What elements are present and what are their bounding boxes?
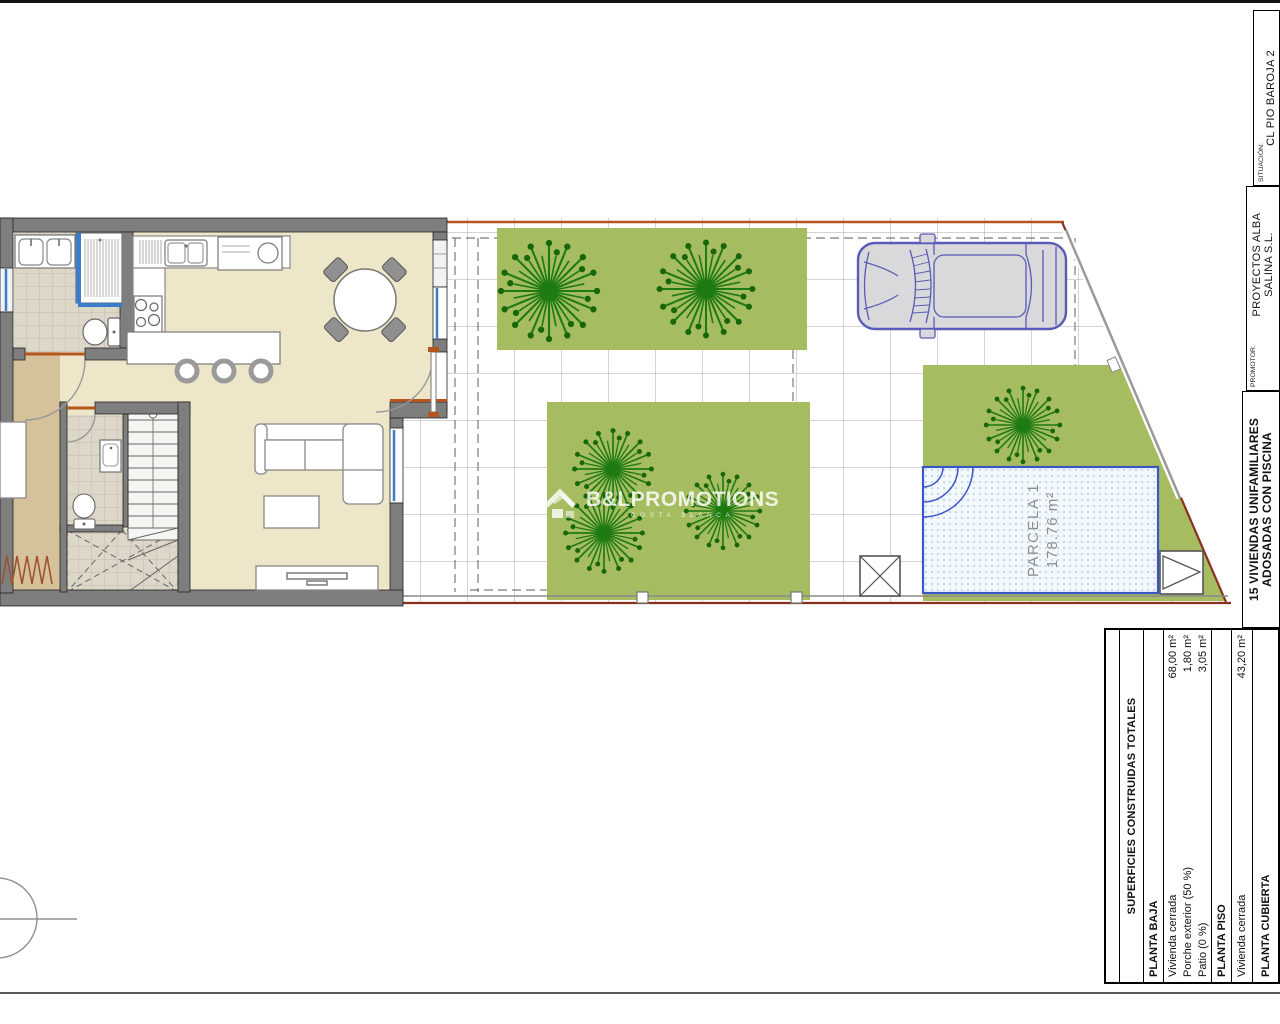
lawn-middle	[547, 402, 810, 600]
dining-set	[323, 257, 408, 343]
situacion-value: CL PIO BAROJA 2	[1265, 11, 1277, 185]
drain-box-icon	[860, 556, 900, 596]
car-mirror	[920, 329, 935, 338]
parcel-label: PARCELA 1	[1025, 483, 1042, 577]
wall-stairs-right	[178, 402, 190, 592]
areas-row-planta-baja: PLANTA BAJA	[1144, 630, 1164, 982]
areas-row-porche: Porche exterior (50 %) 1,80 m²	[1180, 630, 1195, 982]
situacion-label: SITUACIÓN:	[1257, 11, 1265, 185]
coffee-table	[264, 496, 319, 528]
sheet-border-top	[0, 0, 1280, 3]
areas-row-vivienda-baja: Vivienda cerrada 68,00 m²	[1165, 630, 1180, 982]
project-title-line2: ADOSADAS CON PISCINA	[1261, 392, 1275, 627]
areas-row-planta-piso: PLANTA PISO	[1212, 630, 1232, 982]
kitchen-sink	[165, 240, 207, 266]
pool: PARCELA 1 178.76 m²	[923, 467, 1158, 593]
areas-row-planta-cubierta: PLANTA CUBIERTA	[1253, 630, 1278, 982]
toilet-icon	[83, 318, 120, 346]
tv-unit	[256, 566, 378, 590]
north-symbol	[0, 878, 77, 958]
wall-left	[0, 218, 13, 270]
shower	[76, 233, 122, 307]
project-title-line1: 15 VIVIENDAS UNIFAMILIARES	[1248, 392, 1262, 627]
stool	[251, 361, 271, 381]
drawing-sheet: PARCELA 1 178.76 m²	[0, 0, 1280, 1024]
house	[0, 218, 447, 606]
promotor-label: PROMOTOR:	[1247, 342, 1257, 390]
oven	[218, 237, 282, 270]
stove	[134, 296, 162, 336]
fence-post	[637, 592, 648, 603]
areas-row-vivienda-piso: Vivienda cerrada 43,20 m²	[1232, 630, 1253, 982]
wall-hall-right	[60, 402, 67, 592]
areas-row-patio: Patio (0 %) 3,05 m²	[1195, 630, 1210, 982]
titleblock-project: 15 VIVIENDAS UNIFAMILIARES ADOSADAS CON …	[1242, 391, 1280, 628]
stool	[214, 361, 234, 381]
parcel-area: 178.76 m²	[1044, 492, 1061, 569]
areas-table-spacer	[1106, 630, 1119, 982]
car	[858, 234, 1066, 338]
stool	[177, 361, 197, 381]
titleblock-situacion: SITUACIÓN: CL PIO BAROJA 2	[1253, 10, 1280, 186]
hall-closet	[0, 422, 26, 498]
areas-table: SUPERFICIES CONSTRUIDAS TOTALES PLANTA B…	[1104, 628, 1280, 984]
fence-post	[791, 592, 802, 603]
dining-table	[334, 269, 396, 331]
promotor-name: PROYECTOS ALBA	[1251, 187, 1263, 342]
areas-table-header: SUPERFICIES CONSTRUIDAS TOTALES	[1119, 630, 1144, 982]
wall-bottom	[0, 590, 403, 606]
gate-triangle-icon	[1160, 551, 1203, 594]
areas-items-planta-baja: Vivienda cerrada 68,00 m² Porche exterio…	[1164, 630, 1212, 982]
site-plan-svg: PARCELA 1 178.76 m²	[0, 0, 1280, 1024]
promotor-name2: SALINA S.L.	[1263, 187, 1275, 342]
toilet-icon	[73, 494, 95, 529]
wall-top	[0, 218, 447, 232]
titleblock-promotor: PROMOTOR: PROYECTOS ALBA SALINA S.L.	[1246, 186, 1280, 391]
wc-sink	[100, 440, 121, 472]
car-mirror	[920, 234, 935, 243]
